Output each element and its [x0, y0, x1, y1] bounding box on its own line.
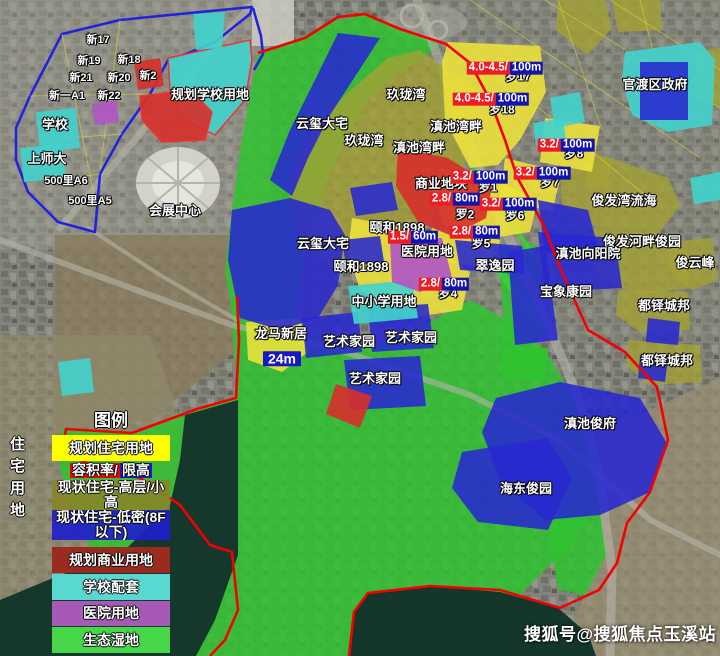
zone-yihe1898 [342, 236, 384, 266]
zone-magenta-small [92, 100, 119, 125]
legend-rows: 规划住宅用地容积率/限高现状住宅-高层/小高现状住宅-低密(8F以下)规划商业用… [52, 435, 170, 653]
expo-center-building [136, 147, 220, 219]
legend-item-part: 容积率/ [70, 463, 120, 478]
legend-item-part: 限高 [120, 463, 152, 478]
zone-patch [533, 118, 566, 146]
zone-xin2 [134, 58, 164, 90]
legend-item: 现状住宅-低密(8F以下) [52, 510, 170, 540]
zone-patch [58, 358, 94, 396]
zone-duduo-blue [646, 318, 680, 345]
legend-item: 现状住宅-高层/小高 [52, 480, 170, 510]
watermark: 搜狐号@搜狐焦点玉溪站 [524, 620, 716, 645]
legend-item: 容积率/限高 [52, 462, 170, 479]
legend-item: 规划商业用地 [52, 547, 170, 573]
legend: 图例 规划住宅用地容积率/限高现状住宅-高层/小高现状住宅-低密(8F以下)规划… [52, 406, 170, 653]
zone-green-patch [500, 345, 548, 380]
zone-guandu-gov [640, 62, 688, 120]
zone-patch [612, 0, 662, 32]
legend-item: 规划住宅用地 [52, 435, 170, 461]
zone-yishujiayuan [302, 312, 362, 358]
legend-item: 医院用地 [52, 601, 170, 626]
legend-item: 生态湿地 [52, 627, 170, 653]
zone-shangshida [20, 144, 66, 182]
zone-yihe1898 [350, 182, 398, 216]
planning-map: 新17新19新18新21新20新2新一A1新22500里A6500里A5学校上师… [0, 0, 720, 656]
legend-title: 图例 [52, 406, 170, 431]
vertical-edge-label: 住宅用地 [6, 436, 27, 524]
zone-patch [193, 12, 225, 50]
legend-item: 学校配套 [52, 574, 170, 600]
zone-duduo-blue [638, 355, 668, 382]
